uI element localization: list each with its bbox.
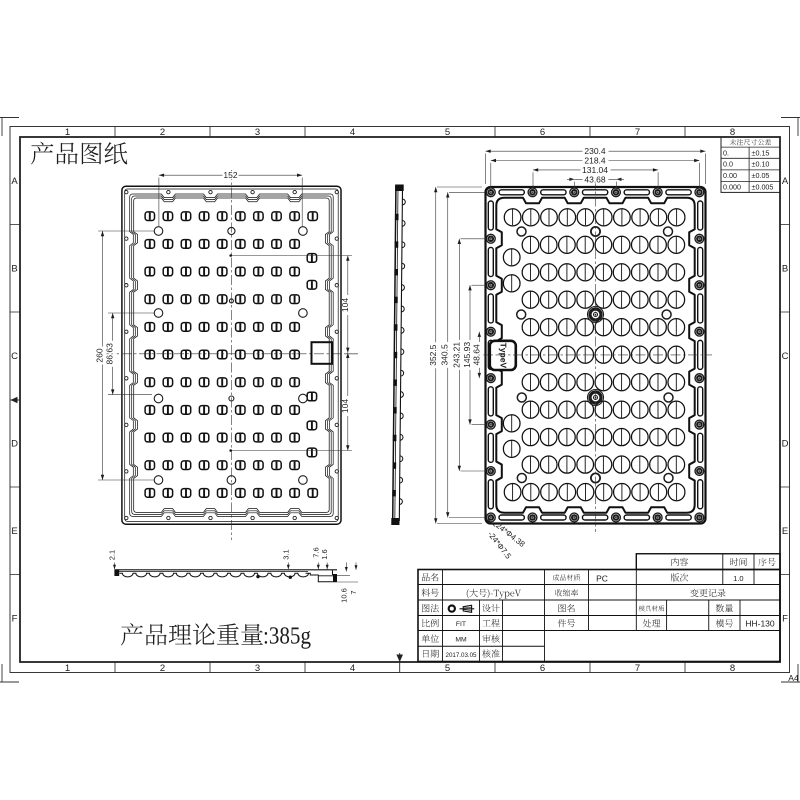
svg-text:±0.15: ±0.15: [752, 148, 770, 157]
svg-text:86.63: 86.63: [105, 343, 115, 365]
svg-text:260: 260: [95, 348, 105, 362]
svg-text:7: 7: [349, 590, 358, 594]
svg-text:MM: MM: [455, 637, 467, 644]
svg-text:2017.03.05: 2017.03.05: [446, 652, 478, 659]
svg-text:1: 1: [65, 127, 70, 138]
svg-text:0.000: 0.000: [723, 183, 741, 192]
svg-text:2: 2: [160, 127, 165, 138]
svg-text:C: C: [11, 351, 18, 362]
svg-text:3: 3: [255, 663, 260, 674]
svg-text:1.0: 1.0: [733, 574, 743, 583]
svg-text:A: A: [11, 176, 18, 187]
svg-text:E: E: [782, 526, 788, 537]
svg-text:3: 3: [255, 127, 260, 138]
svg-text:7: 7: [635, 127, 640, 138]
svg-text:0.00: 0.00: [723, 171, 737, 180]
svg-text:152: 152: [223, 170, 237, 180]
svg-text:F: F: [12, 614, 18, 625]
svg-text:243.21: 243.21: [451, 342, 461, 368]
svg-text:352.5: 352.5: [428, 344, 438, 366]
svg-text:104: 104: [340, 298, 350, 312]
svg-text:C: C: [782, 351, 789, 362]
svg-text:E: E: [11, 526, 17, 537]
svg-text:±0.005: ±0.005: [752, 183, 774, 192]
svg-text:104: 104: [340, 399, 350, 413]
svg-text:2: 2: [160, 663, 165, 674]
svg-text:8: 8: [730, 127, 735, 138]
svg-text:HH-130: HH-130: [745, 619, 775, 629]
svg-text:7.6: 7.6: [311, 547, 320, 557]
svg-text:4: 4: [350, 127, 355, 138]
svg-text:A: A: [782, 176, 789, 187]
svg-text:D: D: [11, 439, 18, 450]
svg-text:340.5: 340.5: [440, 344, 450, 366]
svg-text:1.6: 1.6: [320, 549, 329, 559]
svg-text:3.1: 3.1: [281, 549, 290, 559]
svg-text:B: B: [11, 264, 17, 275]
svg-text:6: 6: [540, 127, 545, 138]
svg-text:±0.05: ±0.05: [752, 171, 770, 180]
svg-text:±0.10: ±0.10: [752, 160, 770, 169]
svg-text:0.: 0.: [723, 148, 729, 157]
svg-text:5: 5: [445, 127, 450, 138]
svg-text:A4: A4: [788, 673, 799, 683]
svg-text:B: B: [782, 264, 788, 275]
svg-text:D: D: [782, 439, 789, 450]
svg-text:F: F: [782, 614, 788, 625]
svg-text:PC: PC: [596, 574, 608, 584]
svg-text:0.0: 0.0: [723, 160, 733, 169]
svg-text:43.68: 43.68: [584, 174, 606, 184]
svg-text:5: 5: [445, 663, 450, 674]
svg-text:10.6: 10.6: [339, 588, 348, 603]
svg-text:FIT: FIT: [456, 621, 466, 628]
svg-text:4: 4: [350, 663, 355, 674]
svg-text:1: 1: [65, 663, 70, 674]
svg-text:2.1: 2.1: [108, 550, 117, 560]
svg-text:6: 6: [540, 663, 545, 674]
svg-text:8: 8: [730, 663, 735, 674]
svg-text:7: 7: [635, 663, 640, 674]
svg-text:48.64: 48.64: [471, 344, 481, 366]
